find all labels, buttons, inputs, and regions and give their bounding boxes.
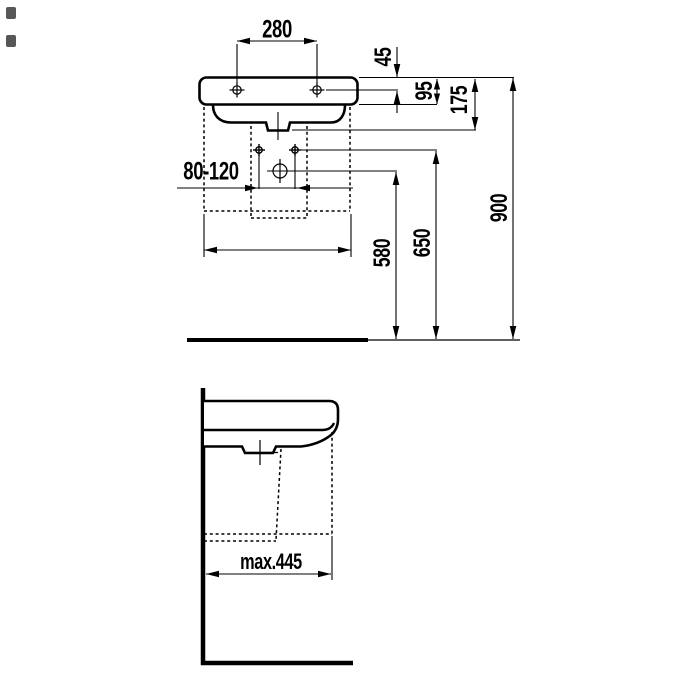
dim-label-80-120: 80-120 [183,158,238,187]
dim-label-900: 900 [486,194,514,223]
dim-label-45: 45 [370,47,398,66]
fixing-hole-right-icon [289,144,301,156]
basin-bowl-outline [213,105,345,131]
dim-label-580: 580 [369,239,397,268]
dimension-drawing-page: 280 45 95 175 80-120 580 650 900 max.445 [0,0,700,700]
dim-label-650: 650 [409,229,437,258]
dim-label-280: 280 [262,16,292,45]
dim-label-175: 175 [446,86,474,115]
basin-body-outline [200,78,358,105]
basin-profile-outline [204,401,338,453]
dim-label-95: 95 [411,81,439,100]
side-view [201,388,353,665]
dim-label-max445: max.445 [240,549,302,575]
fixing-hole-left-icon [253,144,265,156]
dimension-width-unlabeled [204,214,351,257]
drawing-canvas [0,0,700,700]
front-view [187,78,520,341]
